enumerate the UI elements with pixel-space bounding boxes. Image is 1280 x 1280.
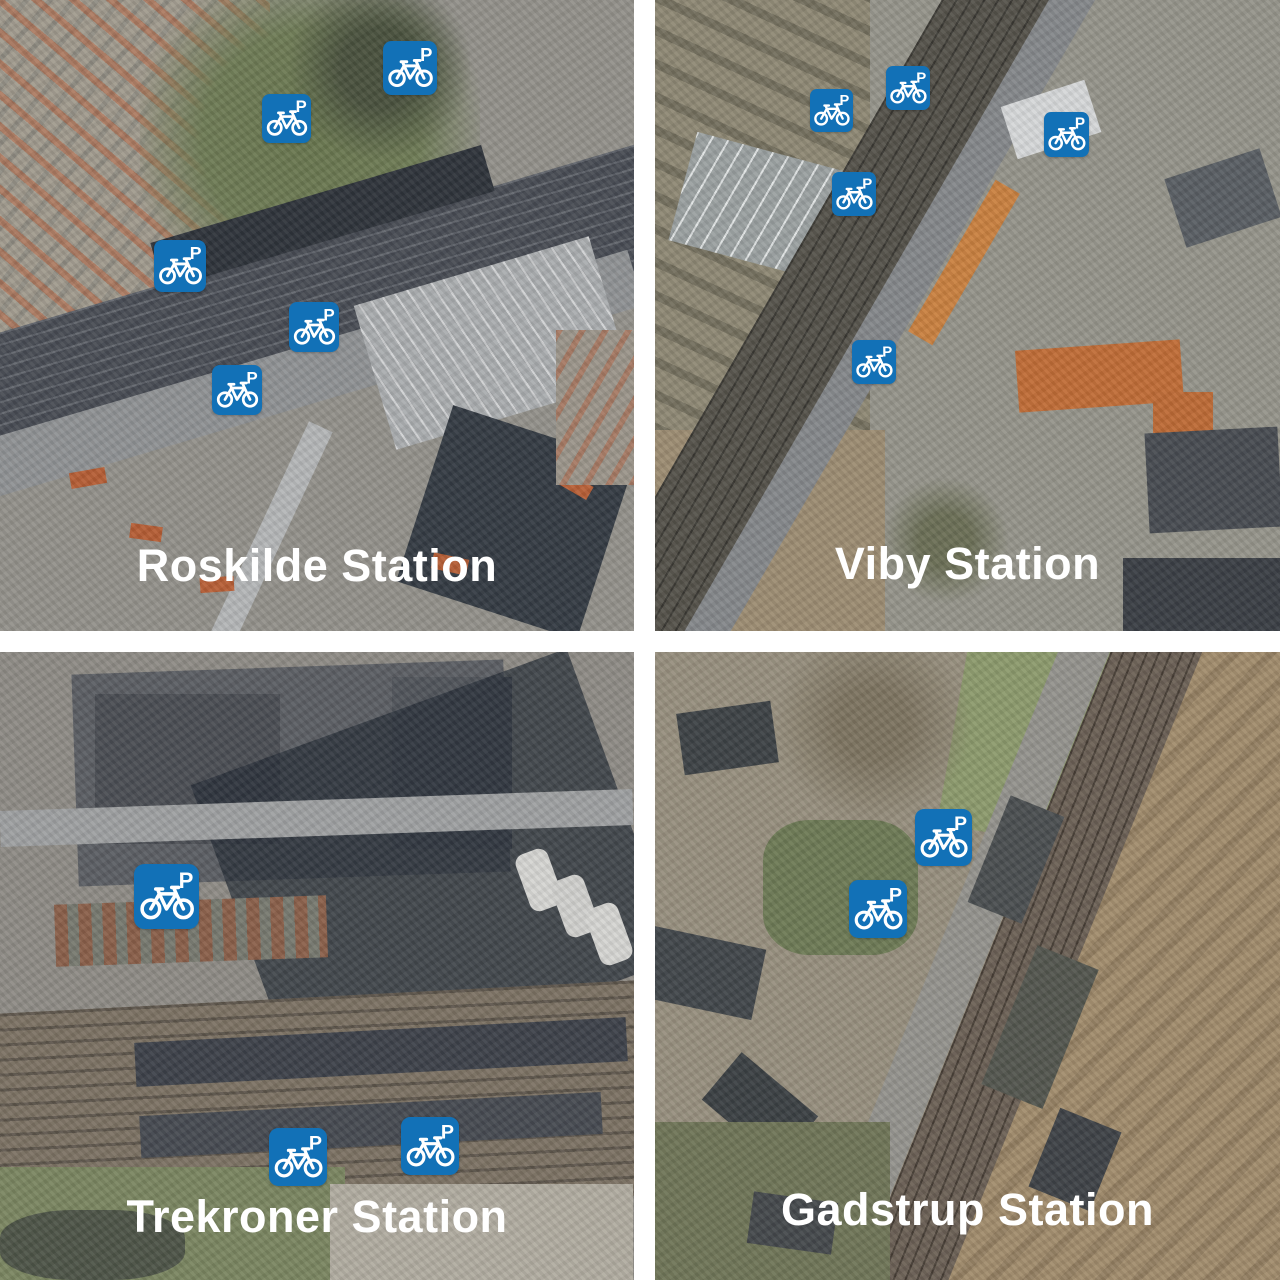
bike-parking-icon: P: [383, 41, 437, 95]
parking-p-letter: P: [1074, 115, 1084, 132]
station-name-label: Trekroner Station: [0, 1194, 634, 1239]
station-name-label: Gadstrup Station: [655, 1187, 1280, 1232]
tree-cluster: [290, 0, 470, 160]
bike-parking-sign: P: [810, 89, 853, 132]
bike-parking-sign: P: [832, 172, 876, 216]
house-roof: [655, 926, 766, 1020]
bike-parking-sign: P: [383, 41, 437, 95]
bike-parking-sign: P: [269, 1128, 327, 1186]
bike-parking-sign: P: [852, 340, 896, 384]
bike-parking-sign: P: [262, 94, 311, 143]
parking-p-letter: P: [309, 1132, 322, 1154]
parking-p-letter: P: [420, 44, 432, 65]
bike-parking-icon: P: [810, 89, 853, 132]
bike-parking-sign: P: [849, 880, 907, 938]
parking-p-letter: P: [178, 868, 193, 893]
bike-parking-icon: P: [154, 240, 206, 292]
parking-p-letter: P: [839, 92, 849, 108]
parking-p-letter: P: [323, 306, 334, 325]
street: [203, 421, 332, 631]
parking-p-letter: P: [954, 813, 967, 835]
bike-parking-sign: P: [886, 66, 930, 110]
parking-p-letter: P: [882, 343, 892, 360]
station-photo-collage: Roskilde Station P P: [0, 0, 1280, 1280]
bike-parking-icon: P: [262, 94, 311, 143]
town-area: [556, 330, 634, 485]
bike-parking-icon: P: [134, 864, 199, 929]
house-roof: [676, 701, 779, 776]
tree-cluster: [770, 652, 975, 822]
bike-parking-icon: P: [269, 1128, 327, 1186]
aerial-photo-viby: Viby Station P P: [655, 0, 1280, 631]
parking-p-letter: P: [246, 369, 257, 388]
bike-parking-icon: P: [832, 172, 876, 216]
dark-building: [1144, 427, 1280, 534]
aerial-photo-trekroner: Trekroner Station P P: [0, 652, 634, 1280]
bike-parking-sign: P: [915, 809, 972, 866]
bike-parking-icon: P: [886, 66, 930, 110]
aerial-photo-roskilde: Roskilde Station P P: [0, 0, 634, 631]
bike-parking-sign: P: [1044, 112, 1089, 157]
bike-parking-icon: P: [1044, 112, 1089, 157]
parking-p-letter: P: [862, 175, 872, 192]
bike-parking-sign: P: [401, 1117, 459, 1175]
bike-parking-sign: P: [154, 240, 206, 292]
parking-p-letter: P: [916, 69, 926, 86]
aerial-photo-gadstrup: Gadstrup Station P P: [655, 652, 1280, 1280]
parking-p-letter: P: [889, 884, 902, 906]
parking-p-letter: P: [441, 1121, 454, 1143]
station-name-label: Viby Station: [655, 541, 1280, 586]
bike-parking-icon: P: [289, 302, 339, 352]
bike-parking-icon: P: [401, 1117, 459, 1175]
bike-parking-sign: P: [289, 302, 339, 352]
dark-building: [1164, 148, 1280, 247]
bike-parking-icon: P: [915, 809, 972, 866]
parking-p-letter: P: [190, 243, 202, 263]
parking-p-letter: P: [295, 97, 306, 116]
bike-parking-sign: P: [134, 864, 199, 929]
bike-parking-icon: P: [852, 340, 896, 384]
bike-parking-icon: P: [849, 880, 907, 938]
station-name-label: Roskilde Station: [0, 543, 634, 588]
bike-parking-sign: P: [212, 365, 262, 415]
bike-parking-icon: P: [212, 365, 262, 415]
